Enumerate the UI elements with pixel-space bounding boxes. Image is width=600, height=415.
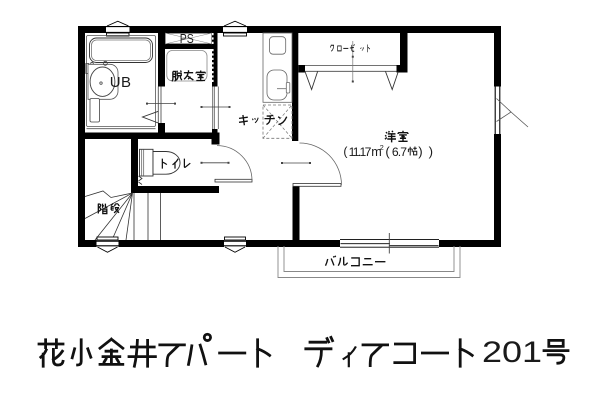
svg-text:): ) [429, 144, 433, 159]
svg-text:PS: PS [180, 33, 194, 46]
svg-text:UB: UB [110, 74, 132, 91]
svg-text:2: 2 [380, 143, 384, 152]
svg-text:): ) [418, 144, 422, 159]
svg-text:(: ( [385, 144, 390, 159]
svg-text:201: 201 [482, 336, 542, 369]
svg-text:11.17: 11.17 [349, 145, 372, 159]
svg-text:(: ( [343, 145, 347, 159]
svg-text:6.7: 6.7 [392, 145, 407, 159]
